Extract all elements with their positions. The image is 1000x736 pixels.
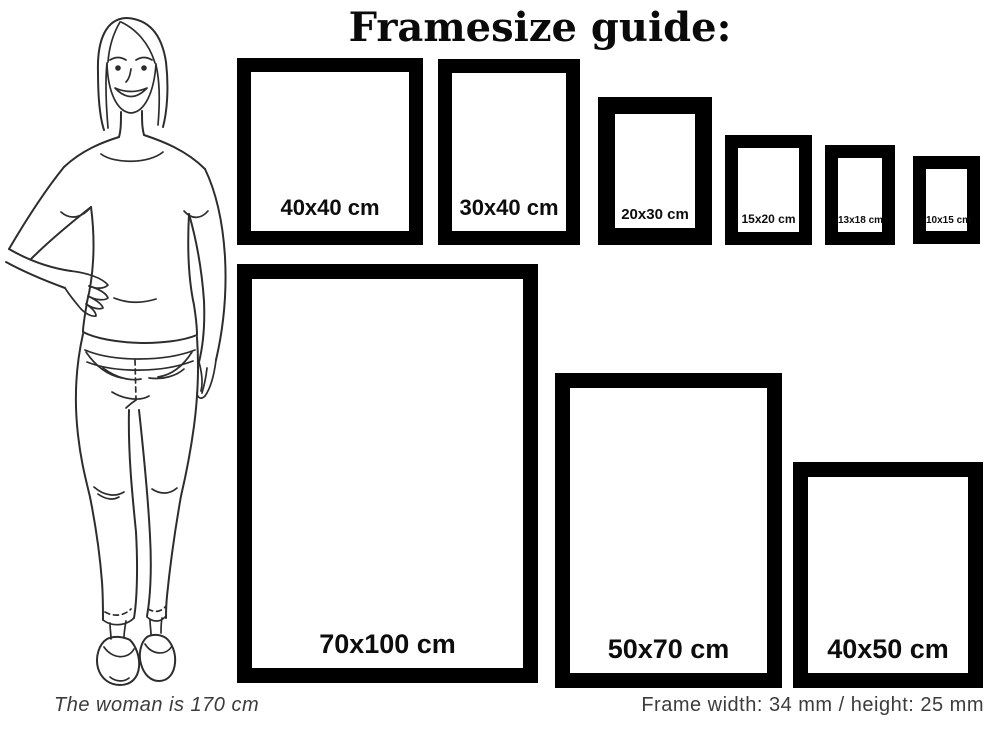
frame-15x20: 15x20 cm — [725, 135, 812, 245]
woman-illustration — [0, 0, 240, 700]
frame-size-label: 15x20 cm — [738, 212, 799, 226]
frame-40x40: 40x40 cm — [237, 58, 423, 245]
frame-50x70: 50x70 cm — [555, 373, 782, 688]
frame-size-label: 50x70 cm — [570, 634, 767, 665]
frame-30x40: 30x40 cm — [438, 59, 580, 245]
page-title: Framesize guide: — [240, 4, 840, 51]
frame-size-label: 70x100 cm — [252, 629, 523, 660]
frame-10x15: 10x15 cm — [913, 156, 980, 244]
frame-70x100: 70x100 cm — [237, 264, 538, 683]
frame-size-label: 40x50 cm — [808, 634, 968, 665]
woman-height-note: The woman is 170 cm — [54, 694, 259, 717]
frame-size-label: 20x30 cm — [615, 206, 695, 223]
frame-size-label: 30x40 cm — [452, 195, 566, 221]
frame-size-label: 10x15 cm — [926, 215, 967, 226]
frame-profile-note: Frame width: 34 mm / height: 25 mm — [641, 694, 984, 717]
frame-size-label: 40x40 cm — [251, 195, 409, 221]
frame-20x30: 20x30 cm — [598, 97, 712, 245]
frame-13x18: 13x18 cm — [825, 145, 895, 245]
framesize-guide: Framesize guide: — [0, 0, 1000, 736]
frame-size-label: 13x18 cm — [838, 215, 882, 226]
frame-40x50: 40x50 cm — [793, 462, 983, 688]
